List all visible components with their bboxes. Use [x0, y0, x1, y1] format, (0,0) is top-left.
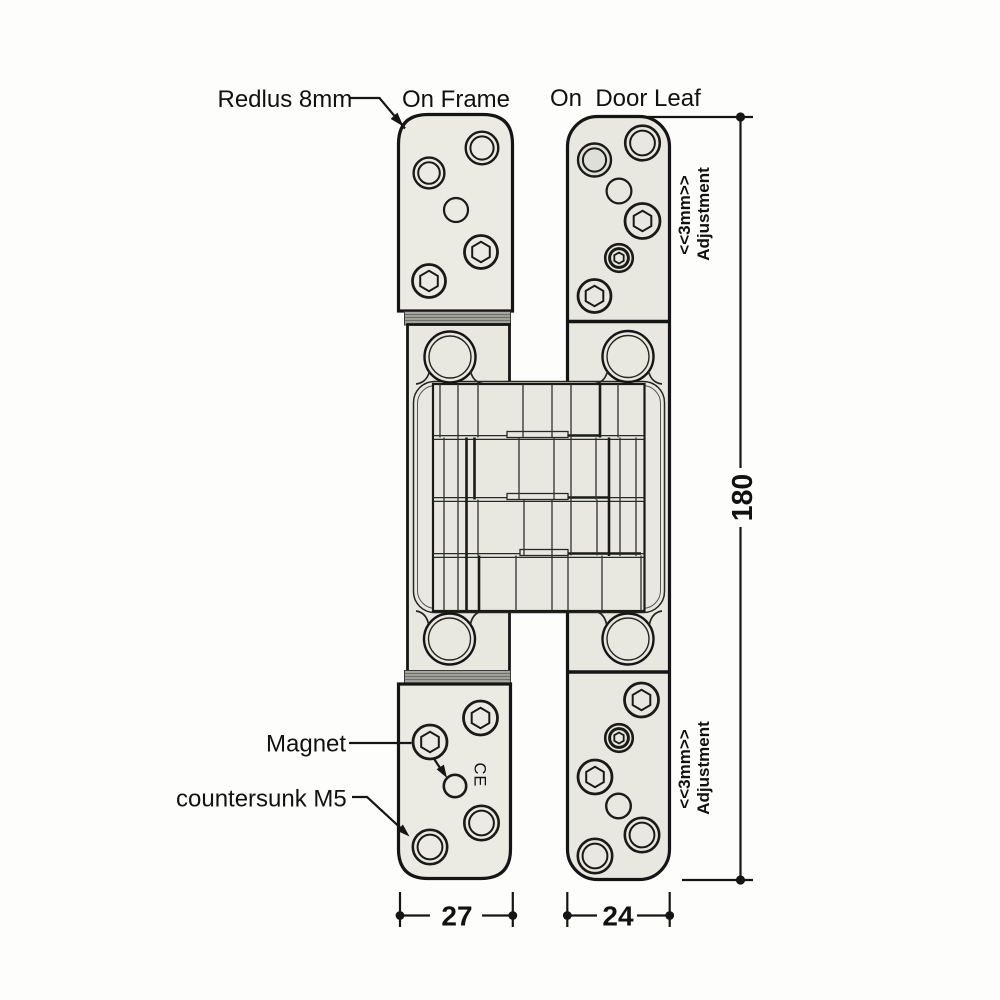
svg-text:27: 27 [441, 901, 472, 932]
svg-text:Magnet: Magnet [266, 731, 346, 758]
svg-text:Adjustment: Adjustment [694, 167, 713, 261]
svg-text:Redlus 8mm: Redlus 8mm [218, 86, 353, 113]
svg-text:On Door Leaf: On Door Leaf [550, 85, 701, 112]
svg-text:countersunk M5: countersunk M5 [176, 786, 347, 813]
svg-text:24: 24 [602, 901, 634, 932]
svg-text:On Frame: On Frame [402, 86, 510, 113]
svg-text:<<3mm>>: <<3mm>> [675, 175, 694, 254]
svg-text:<<3mm>>: <<3mm>> [675, 729, 694, 808]
svg-text:CE: CE [471, 763, 489, 788]
svg-text:Adjustment: Adjustment [694, 721, 713, 815]
svg-text:180: 180 [727, 474, 759, 522]
